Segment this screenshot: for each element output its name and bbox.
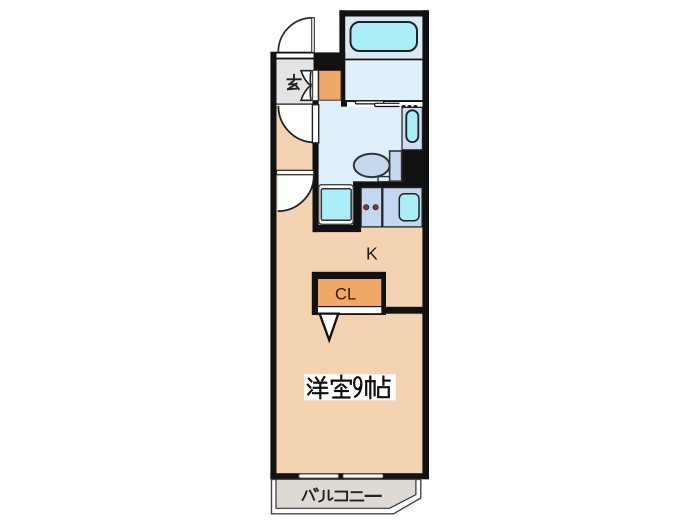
svg-text:CL: CL (335, 286, 356, 304)
svg-text:K: K (366, 243, 378, 263)
